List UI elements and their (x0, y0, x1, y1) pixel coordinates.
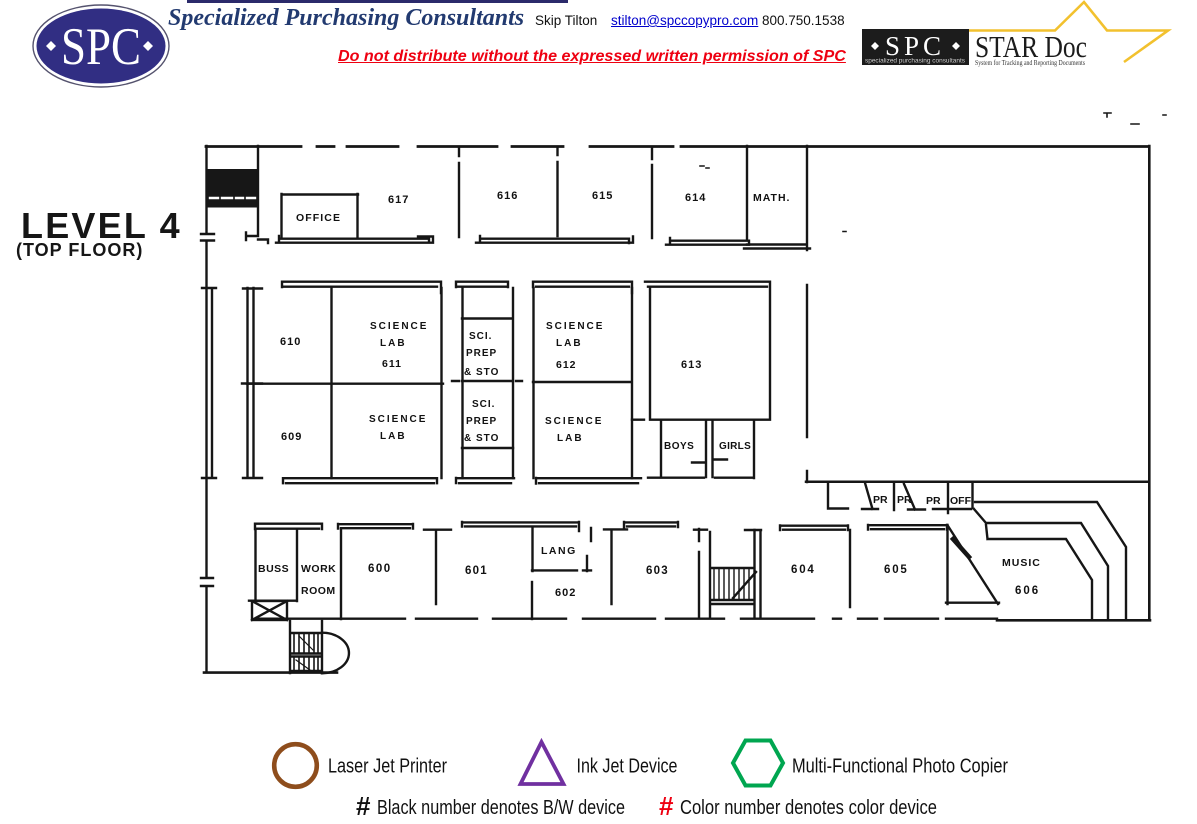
svg-text:#: # (356, 791, 371, 821)
svg-text:Ink Jet Device: Ink Jet Device (577, 756, 678, 778)
svg-text:#: # (659, 791, 674, 821)
svg-text:Multi-Functional Photo Copier: Multi-Functional Photo Copier (792, 756, 1008, 778)
svg-text:Color number denotes color dev: Color number denotes color device (680, 797, 937, 819)
svg-text:Black number denotes B/W devic: Black number denotes B/W device (377, 797, 625, 819)
svg-text:Laser Jet Printer: Laser Jet Printer (328, 756, 447, 778)
